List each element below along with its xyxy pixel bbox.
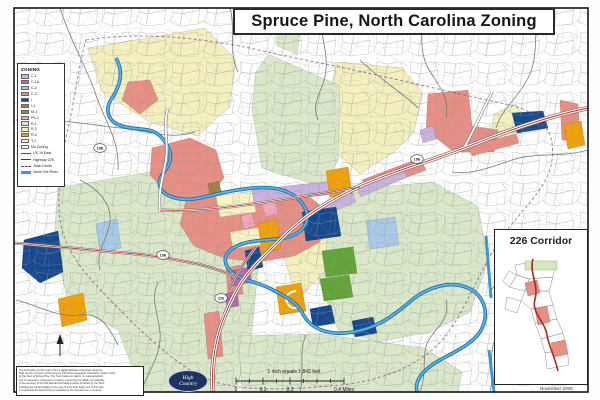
svg-text:0: 0 — [235, 387, 238, 393]
svg-text:19E: 19E — [97, 147, 104, 151]
legend: ZONING C-1 C-1A C-2 C-3 I I-1 M-1 PS-1 R… — [17, 63, 65, 187]
scalebar: 1 inch equals 1,842 feet 0 0.1 0.2 0.4 M… — [226, 369, 366, 395]
zoning-map-page: 19E 19E 226 19E Spruce Pine, North Carol… — [0, 0, 600, 400]
inset-map — [495, 247, 586, 379]
svg-text:19E: 19E — [414, 158, 421, 162]
svg-text:19E: 19E — [160, 254, 167, 258]
inset-salmon-zones — [525, 280, 568, 357]
svg-text:226: 226 — [218, 297, 224, 301]
shield-19e-east: 19E — [411, 155, 423, 164]
swatch-i — [21, 98, 29, 102]
swatch-no-zoning — [21, 145, 29, 149]
swatch-c1 — [21, 74, 29, 78]
swatch-r2 — [21, 127, 29, 131]
swatch-r3 — [21, 133, 29, 137]
swatch-m1 — [21, 110, 29, 114]
us19e-line-symbol — [21, 153, 31, 154]
svg-text:0.2: 0.2 — [287, 387, 294, 393]
swatch-r1 — [21, 121, 29, 125]
river-symbol — [21, 171, 31, 174]
hwy226-line-symbol — [21, 159, 31, 160]
legend-line-item: North Toe River — [21, 169, 62, 175]
map-title-box: Spruce Pine, North Carolina Zoning — [233, 8, 555, 35]
disclaimer-box: The information on this map is from a di… — [16, 366, 144, 396]
svg-text:0.4 Miles: 0.4 Miles — [334, 387, 355, 393]
corridor-inset: 226 Corridor — [494, 229, 588, 385]
map-date: November 2006 — [540, 386, 573, 391]
shield-226: 226 — [215, 294, 227, 303]
swatch-c1a — [21, 80, 29, 84]
map-title: Spruce Pine, North Carolina Zoning — [251, 12, 537, 31]
legend-title: ZONING — [21, 67, 62, 72]
town-limits-symbol — [21, 166, 31, 167]
swatch-t1 — [21, 139, 29, 143]
inset-title: 226 Corridor — [495, 235, 587, 247]
inset-green-zone — [525, 261, 557, 270]
shield-19e-mid: 19E — [157, 251, 169, 260]
svg-text:0.1: 0.1 — [260, 387, 267, 393]
swatch-ps1 — [21, 116, 29, 120]
swatch-c2 — [21, 86, 29, 90]
shield-19e-west: 19E — [94, 144, 106, 153]
scalebar-graphic: 0 0.1 0.2 0.4 Miles — [226, 375, 366, 393]
swatch-c3 — [21, 92, 29, 96]
swatch-i1 — [21, 104, 29, 108]
high-country-logo: High Country — [168, 370, 208, 392]
